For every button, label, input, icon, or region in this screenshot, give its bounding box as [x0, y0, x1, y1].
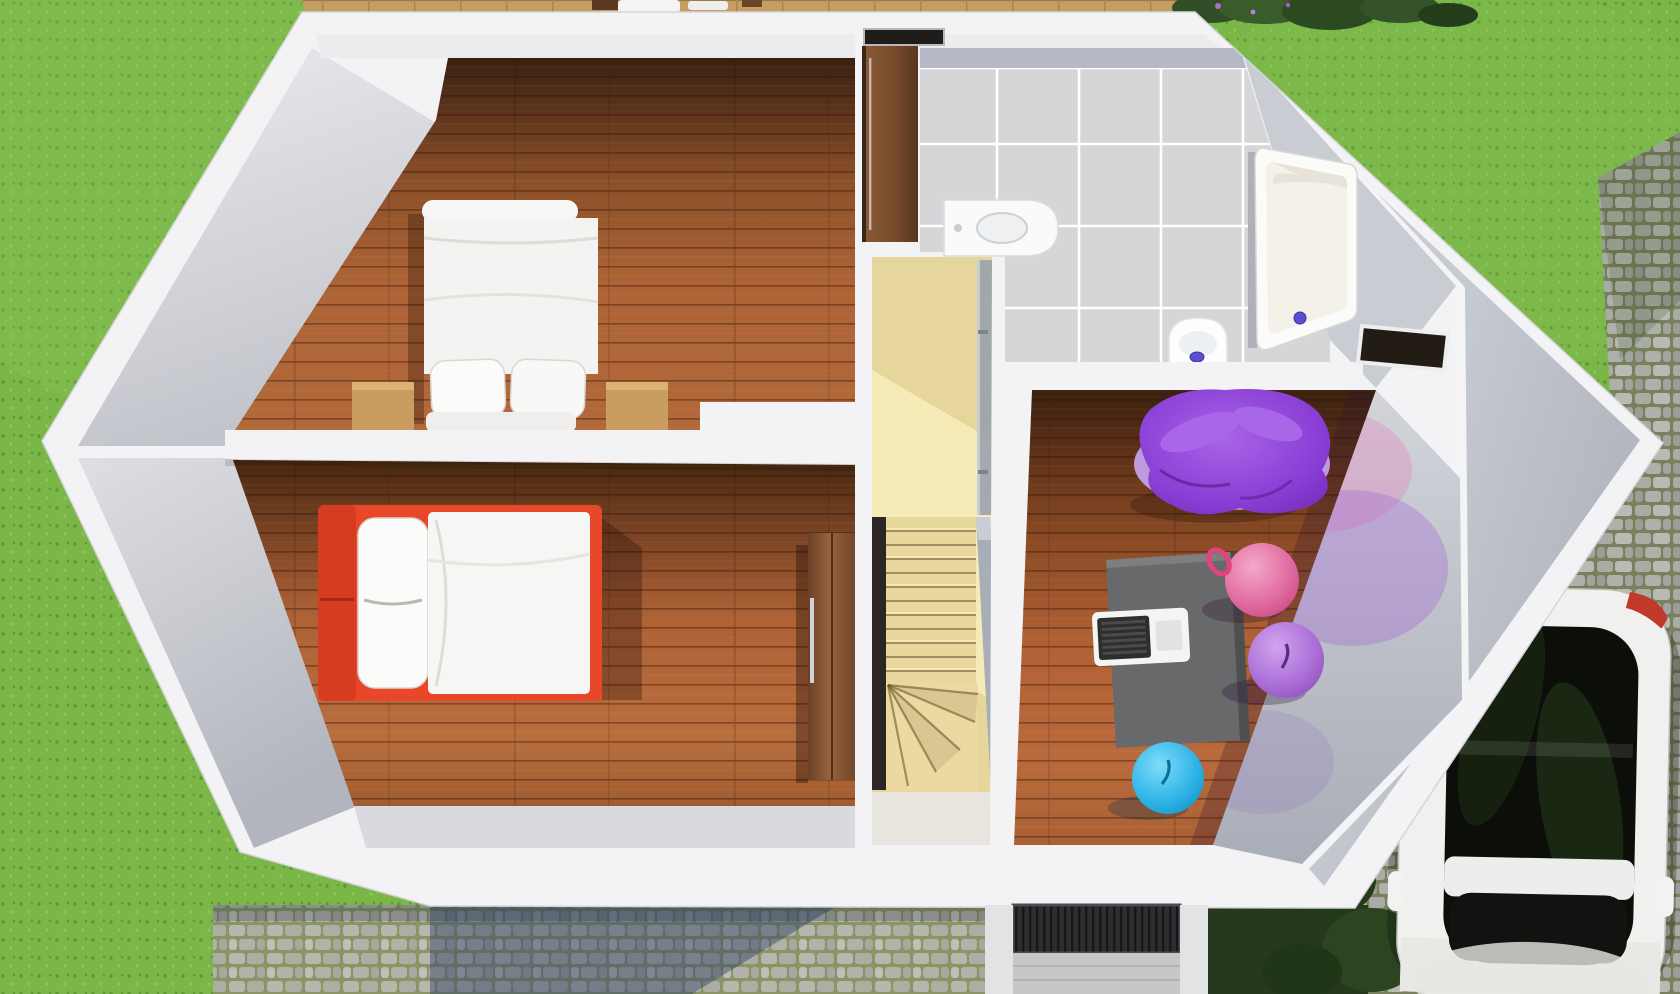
stair-treads [886, 517, 976, 683]
wardrobe-handle [810, 598, 814, 683]
stair-void [872, 517, 886, 790]
entrance-grate [1013, 905, 1180, 953]
entrance-ramp [1013, 953, 1183, 994]
bathroom-wall-tiles-band [920, 48, 1247, 68]
toilet [1169, 318, 1227, 363]
stair-landing [872, 792, 1010, 845]
washbasin [944, 200, 1058, 256]
stair-winders [886, 683, 978, 791]
bathtub [1248, 148, 1357, 350]
car-mirror-right [1655, 877, 1674, 917]
cobblestone-path [213, 905, 985, 994]
porch-wall-left [985, 905, 1013, 994]
wall-niche [1358, 326, 1448, 370]
tall-cabinet [866, 46, 918, 242]
room-stairwell [872, 257, 1010, 845]
scene [0, 0, 1680, 994]
toilet-flush [1190, 352, 1204, 362]
double-bed [408, 200, 598, 432]
entrance [985, 905, 1208, 994]
floorplan-render [0, 0, 1680, 994]
wall-face-bottom [354, 806, 857, 848]
bean-bag [1130, 389, 1330, 523]
porch-wall-right [1180, 905, 1208, 994]
single-bed [318, 505, 642, 701]
bed-foot-bar [426, 412, 576, 432]
window-slit [864, 29, 944, 45]
wall-bathroom-south [1005, 362, 1363, 390]
laptop [1092, 607, 1191, 666]
wall-stairwell-west [855, 252, 872, 848]
car-mirror-left [1387, 871, 1406, 911]
pillow-left [430, 359, 506, 420]
single-bed-duvet [428, 512, 590, 694]
pillow-right [510, 359, 586, 420]
tub-drain [1294, 312, 1306, 324]
wardrobe-shadow [796, 545, 808, 783]
